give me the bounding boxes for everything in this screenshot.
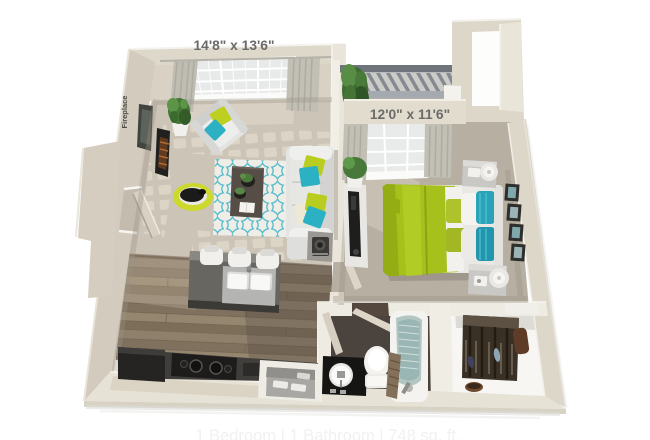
svg-text:1 Bedroom | 1 Bathroom | 7: 1 Bedroom | 1 Bathroom | 748 sq. ft.	[195, 427, 460, 440]
svg-text:Fireplace: Fireplace	[120, 96, 129, 129]
svg-text:12'0" x 11'6": 12'0" x 11'6"	[370, 107, 450, 122]
svg-text:14'8" x 13'6": 14'8" x 13'6"	[193, 38, 274, 53]
